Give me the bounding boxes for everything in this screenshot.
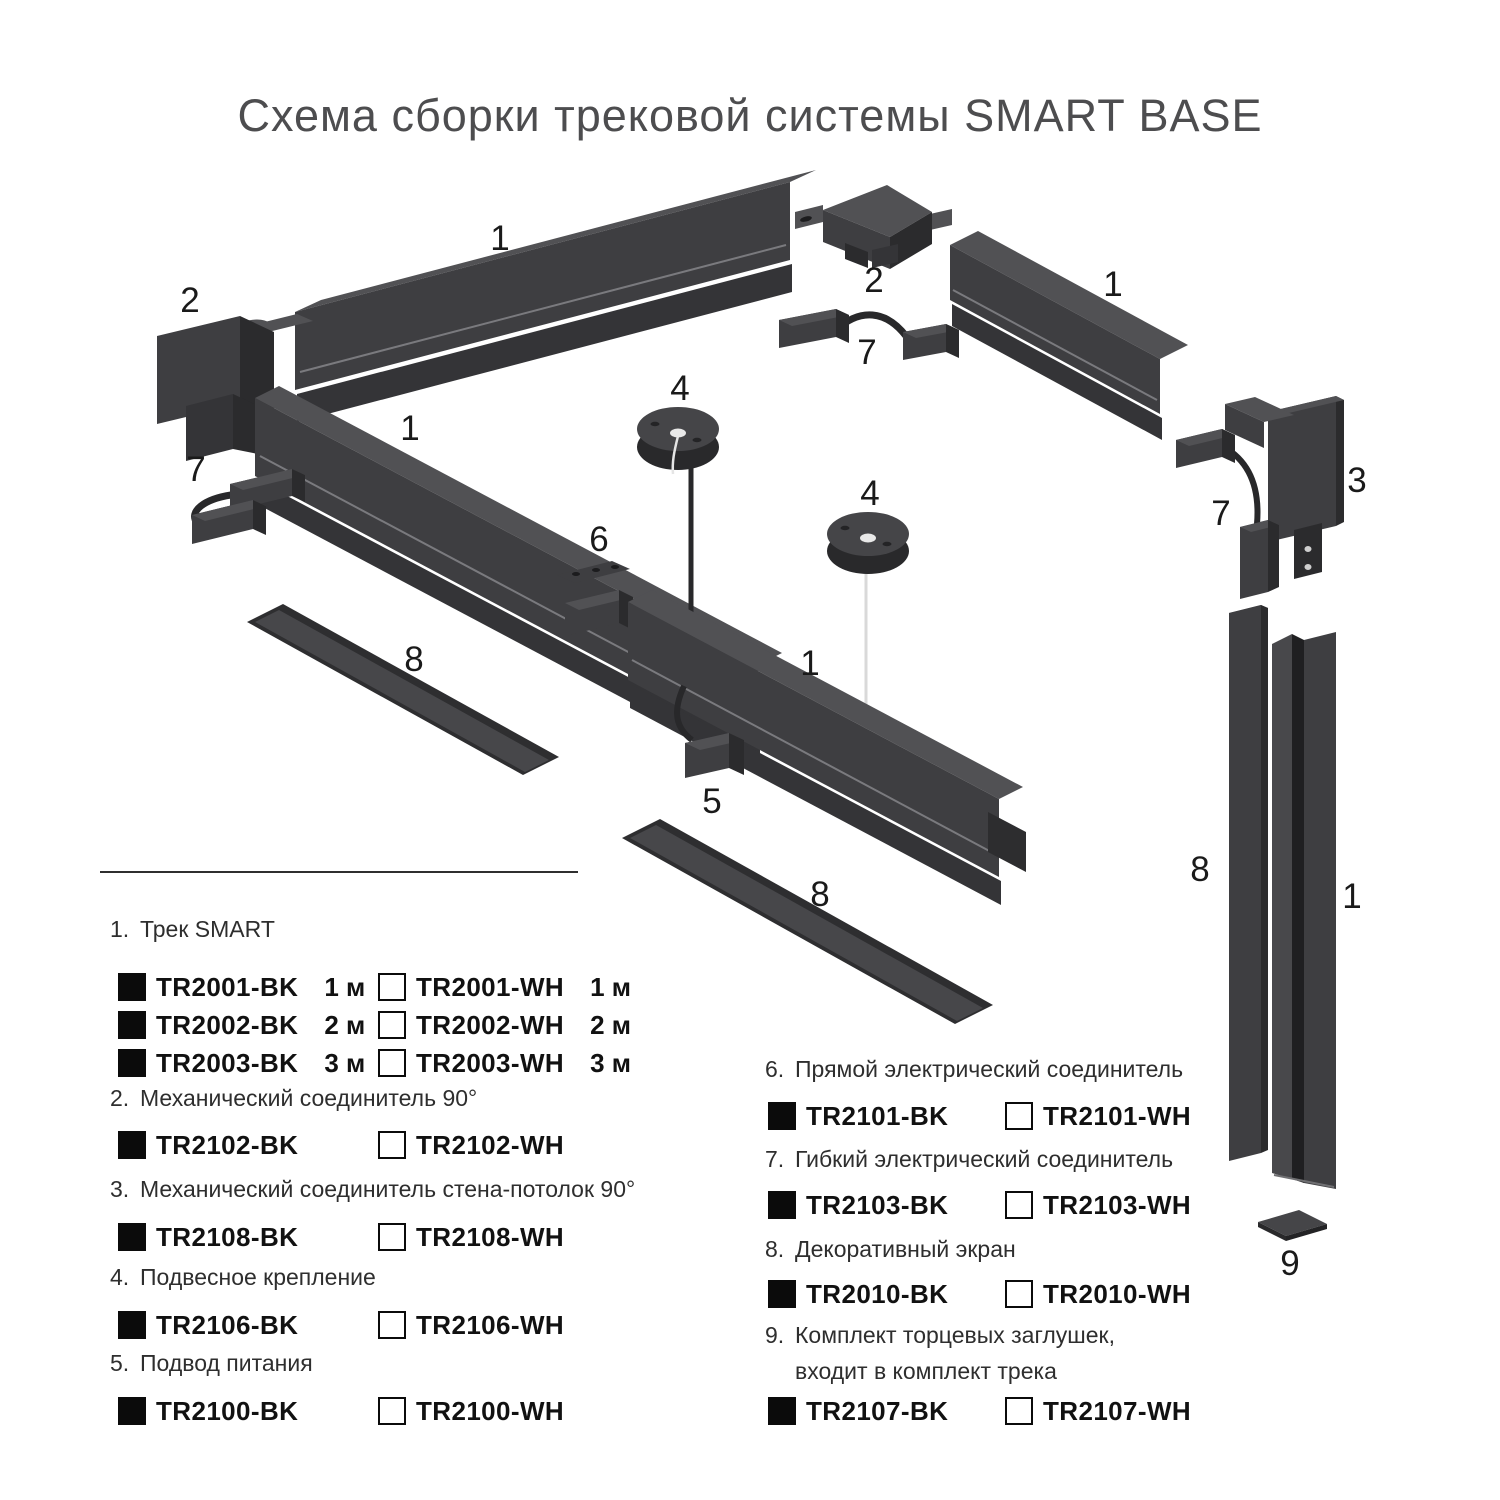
legend-section-track: 1. Трек SMART [110, 916, 275, 943]
legend-rows-flex-connector: TR2103-BK TR2103-WH [768, 1186, 1191, 1224]
part-label-8b: 8 [810, 875, 829, 914]
part-label-4b: 4 [860, 474, 879, 513]
legend-section-title: Подвесное крепление [140, 1264, 376, 1291]
product-code: TR2106-BK [156, 1310, 298, 1341]
legend-section-flex-connector: 7. Гибкий электрический соединитель [765, 1146, 1173, 1173]
legend-section-title: Гибкий электрический соединитель [795, 1146, 1173, 1173]
variant-black: TR2107-BK [768, 1396, 1005, 1427]
part-label-1b: 1 [400, 409, 419, 448]
legend-section-header: 7. Гибкий электрический соединитель [765, 1146, 1173, 1173]
product-code: TR2100-WH [416, 1396, 564, 1427]
part-label-1e: 1 [1342, 877, 1361, 916]
legend-row: TR2102-BK TR2102-WH [118, 1126, 564, 1164]
legend-section-straight-connector: 6. Прямой электрический соединитель [765, 1056, 1183, 1083]
variant-black: TR2003-BK3 м [118, 1048, 378, 1079]
legend-section-header: 3. Механический соединитель стена-потоло… [110, 1176, 635, 1203]
part-label-1a: 1 [490, 219, 509, 258]
legend-section-caps: 9. Комплект торцевых заглушек, входит в … [765, 1322, 1115, 1385]
product-code: TR2001-WH [416, 972, 564, 1003]
legend-row: TR2001-BK1 м TR2001-WH1 м [118, 968, 631, 1006]
legend-section-corner90: 2. Механический соединитель 90° [110, 1085, 477, 1112]
variant-black: TR2100-BK [118, 1396, 378, 1427]
white-swatch [378, 1011, 406, 1039]
page: { "title": "Схема сборки трековой систем… [0, 0, 1500, 1500]
variant-white: TR2107-WH [1005, 1396, 1191, 1427]
legend-section-number: 7. [765, 1146, 795, 1173]
legend-rows-wall-ceiling: TR2108-BK TR2108-WH [118, 1218, 564, 1256]
legend-section-title-line2: входит в комплект трека [795, 1358, 1115, 1385]
legend-section-header: 4. Подвесное крепление [110, 1264, 376, 1291]
white-swatch [378, 1397, 406, 1425]
part-label-1c: 1 [1103, 265, 1122, 304]
legend-row: TR2010-BK TR2010-WH [768, 1275, 1191, 1313]
part-label-2b: 2 [864, 261, 883, 300]
product-code: TR2001-BK [156, 972, 298, 1003]
legend-row: TR2103-BK TR2103-WH [768, 1186, 1191, 1224]
black-swatch [118, 1397, 146, 1425]
black-swatch [118, 1011, 146, 1039]
black-swatch [768, 1397, 796, 1425]
part-label-5: 5 [702, 782, 721, 821]
legend-section-number: 2. [110, 1085, 140, 1112]
black-swatch [118, 1131, 146, 1159]
part-label-9: 9 [1280, 1244, 1299, 1283]
product-code: TR2003-WH [416, 1048, 564, 1079]
variant-white: TR2102-WH [378, 1130, 564, 1161]
white-swatch [1005, 1191, 1033, 1219]
white-swatch [378, 973, 406, 1001]
length-value: 3 м [324, 1048, 365, 1079]
legend-row: TR2101-BK TR2101-WH [768, 1097, 1191, 1135]
black-swatch [118, 1049, 146, 1077]
legend-section-header: 6. Прямой электрический соединитель [765, 1056, 1183, 1083]
legend-rows-caps: TR2107-BK TR2107-WH [768, 1392, 1191, 1430]
black-swatch [768, 1102, 796, 1130]
variant-white: TR2108-WH [378, 1222, 564, 1253]
legend-row: TR2002-BK2 м TR2002-WH2 м [118, 1006, 631, 1044]
legend-section-number: 3. [110, 1176, 140, 1203]
legend-section-number: 1. [110, 916, 140, 943]
variant-black: TR2102-BK [118, 1130, 378, 1161]
product-code: TR2003-BK [156, 1048, 298, 1079]
white-swatch [378, 1223, 406, 1251]
product-code: TR2103-BK [806, 1190, 948, 1221]
legend-rows-track: TR2001-BK1 м TR2001-WH1 м TR2002-BK2 м T… [118, 968, 631, 1082]
variant-white: TR2100-WH [378, 1396, 564, 1427]
track-segment-vertical [1272, 632, 1336, 1189]
legend-section-number: 8. [765, 1236, 795, 1263]
product-code: TR2101-WH [1043, 1101, 1191, 1132]
legend-section-title: Прямой электрический соединитель [795, 1056, 1183, 1083]
legend-section-header: 2. Механический соединитель 90° [110, 1085, 477, 1112]
variant-black: TR2106-BK [118, 1310, 378, 1341]
length-value: 2 м [590, 1010, 631, 1041]
product-code: TR2106-WH [416, 1310, 564, 1341]
legend-section-power: 5. Подвод питания [110, 1350, 313, 1377]
legend-separator [100, 871, 578, 873]
legend-section-title: Механический соединитель стена-потолок 9… [140, 1176, 635, 1203]
legend-section-number: 5. [110, 1350, 140, 1377]
part-label-7a: 7 [186, 450, 205, 489]
legend-row: TR2106-BK TR2106-WH [118, 1306, 564, 1344]
black-swatch [118, 1311, 146, 1339]
legend-section-number: 9. [765, 1322, 795, 1349]
legend-section-number: 4. [110, 1264, 140, 1291]
product-code: TR2010-WH [1043, 1279, 1191, 1310]
product-code: TR2010-BK [806, 1279, 948, 1310]
length-value: 1 м [324, 972, 365, 1003]
legend-section-wall-ceiling: 3. Механический соединитель стена-потоло… [110, 1176, 635, 1203]
white-swatch [378, 1049, 406, 1077]
part-label-2a: 2 [180, 281, 199, 320]
product-code: TR2102-BK [156, 1130, 298, 1161]
variant-white: TR2003-WH3 м [378, 1048, 631, 1079]
decorative-screen-vertical [1229, 605, 1268, 1161]
white-swatch [1005, 1280, 1033, 1308]
part-label-7b: 7 [857, 333, 876, 372]
variant-black: TR2010-BK [768, 1279, 1005, 1310]
white-swatch [378, 1131, 406, 1159]
part-label-8c: 8 [1190, 850, 1209, 889]
white-swatch [1005, 1397, 1033, 1425]
length-value: 3 м [590, 1048, 631, 1079]
legend-section-header: 8. Декоративный экран [765, 1236, 1016, 1263]
legend-section-title: Комплект торцевых заглушек, [795, 1322, 1115, 1349]
track-segment-top-right [950, 231, 1188, 440]
part-label-8a: 8 [404, 640, 423, 679]
variant-black: TR2001-BK1 м [118, 972, 378, 1003]
variant-black: TR2103-BK [768, 1190, 1005, 1221]
length-value: 1 м [590, 972, 631, 1003]
part-label-4a: 4 [670, 369, 689, 408]
end-cap [1258, 1210, 1327, 1241]
legend-row: TR2108-BK TR2108-WH [118, 1218, 564, 1256]
legend-rows-straight-connector: TR2101-BK TR2101-WH [768, 1097, 1191, 1135]
legend-row: TR2107-BK TR2107-WH [768, 1392, 1191, 1430]
variant-white: TR2002-WH2 м [378, 1010, 631, 1041]
product-code: TR2108-WH [416, 1222, 564, 1253]
product-code: TR2002-BK [156, 1010, 298, 1041]
part-label-6: 6 [589, 520, 608, 559]
black-swatch [768, 1191, 796, 1219]
part-label-3: 3 [1347, 461, 1366, 500]
variant-black: TR2002-BK2 м [118, 1010, 378, 1041]
product-code: TR2107-WH [1043, 1396, 1191, 1427]
part-label-1d: 1 [800, 644, 819, 683]
legend-section-title: Декоративный экран [795, 1236, 1016, 1263]
length-value: 2 м [324, 1010, 365, 1041]
product-code: TR2101-BK [806, 1101, 948, 1132]
part-label-7c: 7 [1211, 494, 1230, 533]
black-swatch [118, 973, 146, 1001]
legend-section-header: 5. Подвод питания [110, 1350, 313, 1377]
product-code: TR2100-BK [156, 1396, 298, 1427]
variant-white: TR2101-WH [1005, 1101, 1191, 1132]
legend-rows-corner90: TR2102-BK TR2102-WH [118, 1126, 564, 1164]
legend-section-header: 1. Трек SMART [110, 916, 275, 943]
black-swatch [768, 1280, 796, 1308]
product-code: TR2107-BK [806, 1396, 948, 1427]
variant-white: TR2010-WH [1005, 1279, 1191, 1310]
legend-rows-power: TR2100-BK TR2100-WH [118, 1392, 564, 1430]
product-code: TR2102-WH [416, 1130, 564, 1161]
legend-section-pendant: 4. Подвесное крепление [110, 1264, 376, 1291]
variant-white: TR2103-WH [1005, 1190, 1191, 1221]
white-swatch [378, 1311, 406, 1339]
product-code: TR2103-WH [1043, 1190, 1191, 1221]
legend-section-title: Механический соединитель 90° [140, 1085, 477, 1112]
white-swatch [1005, 1102, 1033, 1130]
variant-white: TR2001-WH1 м [378, 972, 631, 1003]
legend-section-title: Трек SMART [140, 916, 275, 943]
product-code: TR2002-WH [416, 1010, 564, 1041]
corner-connector-top [795, 185, 952, 269]
variant-black: TR2108-BK [118, 1222, 378, 1253]
variant-black: TR2101-BK [768, 1101, 1005, 1132]
product-code: TR2108-BK [156, 1222, 298, 1253]
legend-section-number: 6. [765, 1056, 795, 1083]
legend-rows-screen: TR2010-BK TR2010-WH [768, 1275, 1191, 1313]
black-swatch [118, 1223, 146, 1251]
legend-rows-pendant: TR2106-BK TR2106-WH [118, 1306, 564, 1344]
track-segment-top-left [295, 170, 816, 422]
legend-row: TR2100-BK TR2100-WH [118, 1392, 564, 1430]
variant-white: TR2106-WH [378, 1310, 564, 1341]
legend-section-header: 9. Комплект торцевых заглушек, [765, 1322, 1115, 1349]
legend-section-screen: 8. Декоративный экран [765, 1236, 1016, 1263]
legend-row: TR2003-BK3 м TR2003-WH3 м [118, 1044, 631, 1082]
legend-section-title: Подвод питания [140, 1350, 313, 1377]
